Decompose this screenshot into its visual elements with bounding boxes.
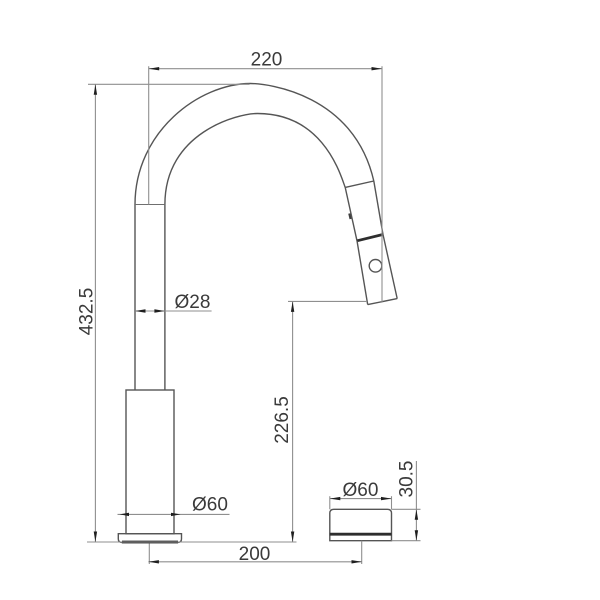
svg-text:Ø60: Ø60 <box>343 480 379 501</box>
svg-text:226.5: 226.5 <box>272 396 293 444</box>
svg-text:30.5: 30.5 <box>396 461 417 498</box>
svg-text:Ø28: Ø28 <box>175 292 211 313</box>
svg-text:200: 200 <box>239 544 271 565</box>
svg-text:432.5: 432.5 <box>77 288 98 336</box>
svg-text:Ø60: Ø60 <box>192 495 228 516</box>
svg-text:220: 220 <box>251 50 283 71</box>
